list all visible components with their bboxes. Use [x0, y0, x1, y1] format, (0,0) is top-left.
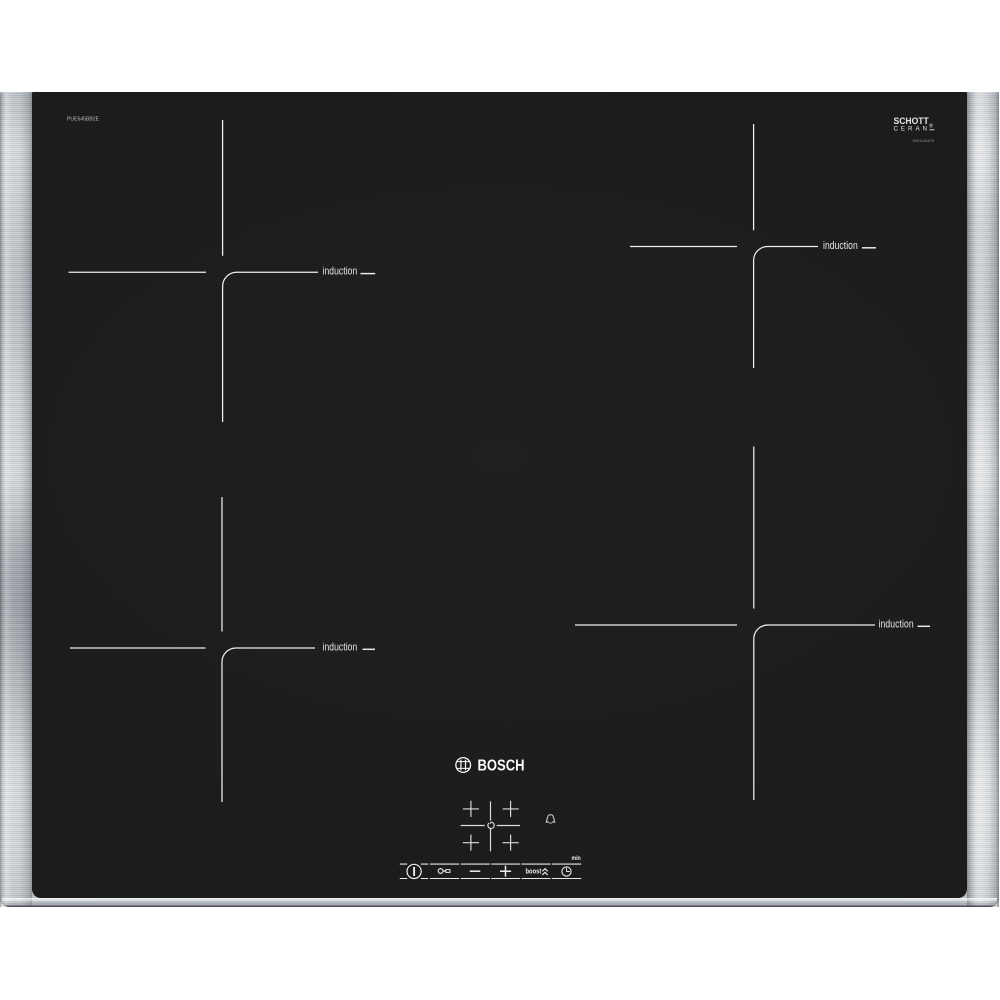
- svg-text:®: ®: [929, 123, 933, 130]
- svg-text:min: min: [572, 856, 581, 862]
- svg-text:9001140876: 9001140876: [913, 138, 935, 143]
- svg-text:boost: boost: [526, 869, 542, 876]
- svg-text:induction: induction: [879, 618, 914, 630]
- svg-text:BOSCH: BOSCH: [478, 757, 525, 774]
- svg-text:induction: induction: [323, 641, 358, 653]
- svg-text:induction: induction: [823, 240, 858, 252]
- svg-text:PUE645BB2E: PUE645BB2E: [67, 117, 100, 123]
- svg-text:induction: induction: [323, 266, 358, 278]
